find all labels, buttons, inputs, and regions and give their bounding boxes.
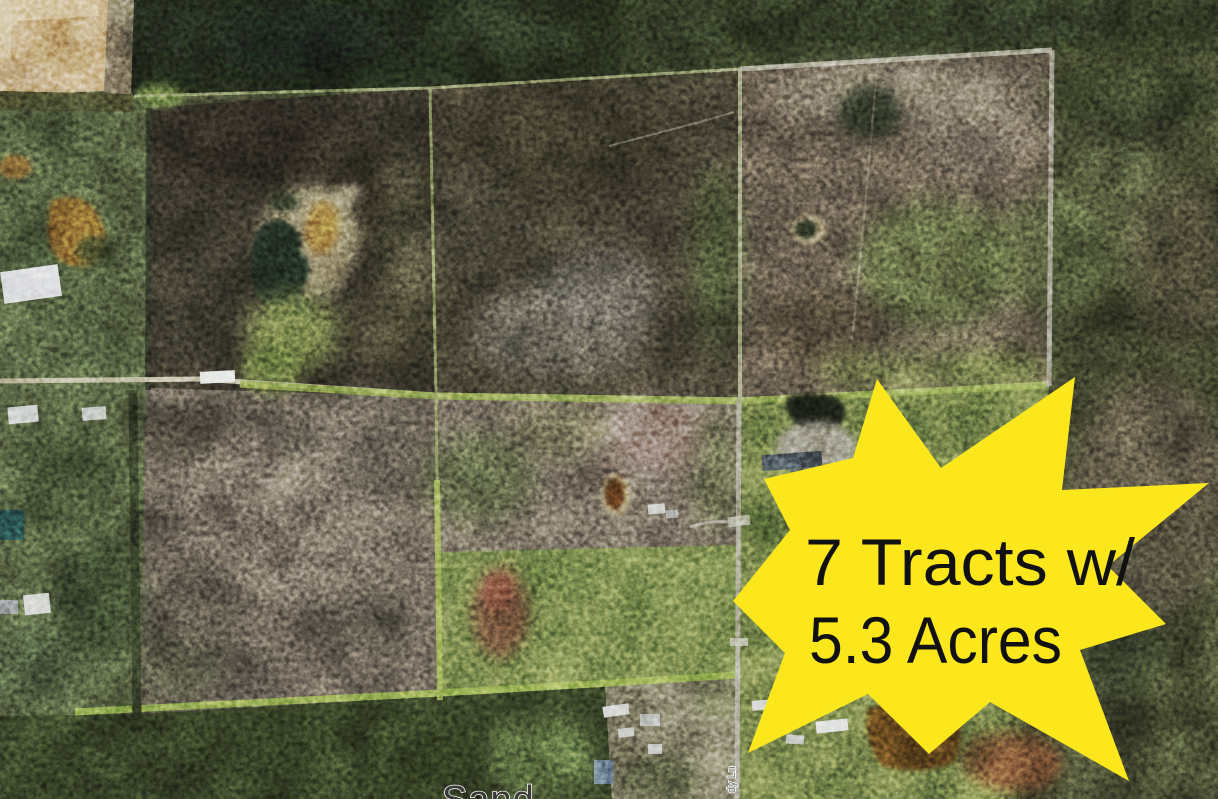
svg-text:Sand: Sand [442,779,535,799]
svg-text:dy Ln: dy Ln [726,766,738,793]
svg-text:5.3 Acres: 5.3 Acres [809,603,1062,677]
svg-text:7 Tracts w/: 7 Tracts w/ [805,525,1136,599]
